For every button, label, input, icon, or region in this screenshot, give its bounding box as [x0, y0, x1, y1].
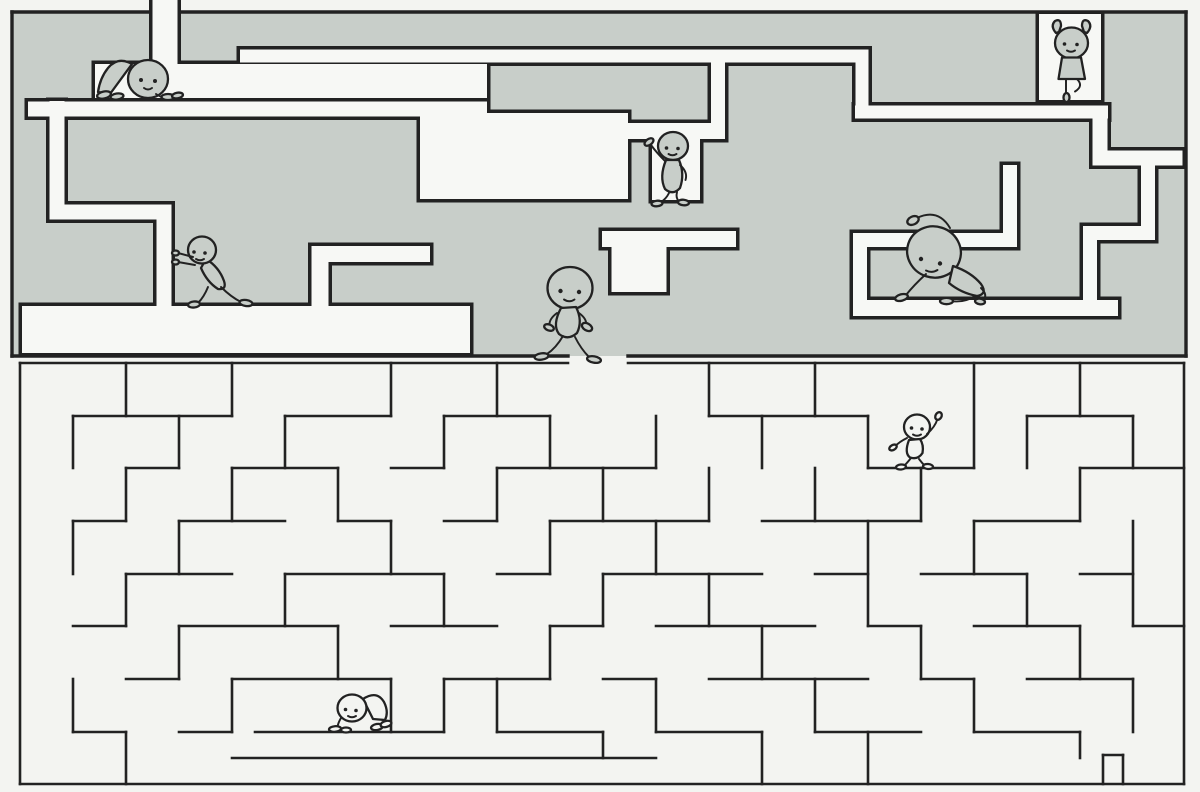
figure-part [1064, 93, 1070, 102]
figure-part [341, 728, 351, 733]
figure-part [534, 352, 549, 360]
figure-part [110, 93, 124, 101]
figure-part [975, 298, 986, 305]
figure-eye [676, 147, 680, 151]
figure-eye [139, 78, 143, 82]
maze-scene-holder [0, 0, 1200, 792]
figure-body [556, 307, 580, 337]
figure-part [128, 60, 168, 98]
figure-eye [910, 426, 914, 430]
figure-eye [1063, 42, 1067, 46]
figure-eye [203, 251, 207, 255]
figure-eye [919, 257, 923, 261]
figure-eye [344, 708, 348, 712]
figure-eye [558, 289, 562, 293]
figure-part [172, 251, 179, 256]
figure-body [907, 439, 923, 458]
maze-illustration [0, 0, 1200, 792]
figure-part [172, 260, 179, 265]
figure-eye [665, 146, 669, 150]
figure-eye [192, 250, 196, 254]
figure-part [923, 464, 933, 470]
figure-eye [577, 290, 581, 294]
figure-eye [354, 709, 358, 713]
figure-body [1059, 58, 1086, 80]
maze-scene [0, 0, 1200, 792]
figure-part [896, 464, 906, 470]
figure-part [172, 92, 184, 99]
figure-part [940, 298, 953, 304]
figure-part [678, 199, 689, 206]
figure-part [188, 301, 201, 308]
figure-part [651, 200, 662, 207]
figure-eye [920, 427, 924, 431]
figure-eye [153, 79, 157, 83]
figure-eye [938, 261, 942, 265]
figure-part [548, 267, 593, 309]
figure-part [329, 726, 341, 733]
figure-part [1055, 28, 1088, 59]
figure-part [239, 299, 253, 307]
figure-eye [1075, 43, 1079, 47]
